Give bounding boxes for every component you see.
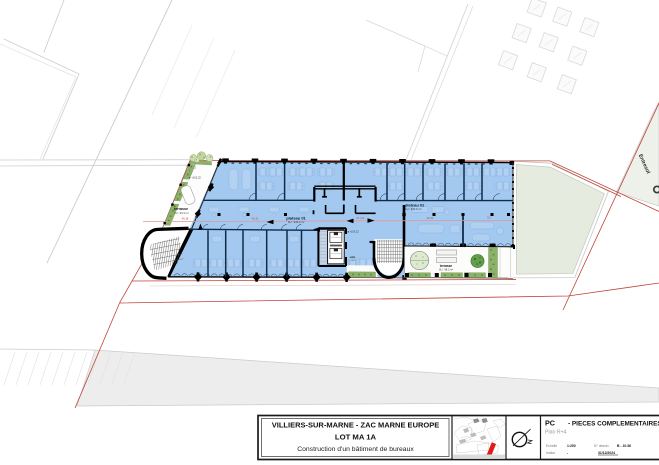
svg-text:-: -	[567, 451, 568, 455]
svg-text:terrasse: terrasse	[174, 207, 188, 211]
svg-text:SU : 98.2 m²: SU : 98.2 m²	[439, 269, 453, 272]
svg-text:PC: PC	[545, 419, 555, 428]
svg-text:46.18: 46.18	[182, 217, 189, 221]
svg-text:Echelle: Echelle	[546, 444, 557, 448]
svg-text:B - 10.36: B - 10.36	[617, 444, 631, 448]
svg-text:31/12/2024: 31/12/2024	[598, 451, 615, 455]
svg-text:SU : 943.0 m²: SU : 943.0 m²	[288, 220, 305, 224]
svg-text:9.2: 9.2	[487, 216, 491, 220]
svg-text:1:200: 1:200	[567, 444, 576, 448]
svg-text:◄ +102.22: ◄ +102.22	[188, 175, 201, 179]
svg-text:46.10: 46.10	[427, 216, 434, 220]
svg-text:LOT MA 1A: LOT MA 1A	[335, 433, 377, 442]
svg-text:Plan R+4: Plan R+4	[545, 430, 567, 436]
svg-text:Indice: Indice	[546, 451, 555, 455]
svg-text:SU : 93.4 m²: SU : 93.4 m²	[174, 211, 189, 215]
svg-text:plateau 01: plateau 01	[286, 215, 306, 220]
svg-text:terrasse: terrasse	[440, 264, 453, 268]
svg-text:01 | 02: 01 | 02	[357, 216, 365, 220]
svg-text:SU : 940.9 m²: SU : 940.9 m²	[405, 207, 422, 211]
svg-text:- PIECES COMPLEMENTAIRES: - PIECES COMPLEMENTAIRES	[568, 421, 659, 428]
svg-text:salle: salle	[350, 255, 356, 259]
svg-text:■ +105.22: ■ +105.22	[347, 230, 359, 233]
svg-text:Construction d'un bâtiment de: Construction d'un bâtiment de bureaux	[297, 446, 414, 453]
svg-text:N° dessin: N° dessin	[594, 444, 609, 448]
svg-text:+ 45.2: + 45.2	[349, 260, 356, 262]
svg-text:VILLIERS-SUR-MARNE - ZAC MARNE: VILLIERS-SUR-MARNE - ZAC MARNE EUROPE	[272, 421, 440, 430]
svg-text:40.10: 40.10	[252, 216, 259, 220]
svg-text:plateau 02: plateau 02	[405, 202, 425, 207]
